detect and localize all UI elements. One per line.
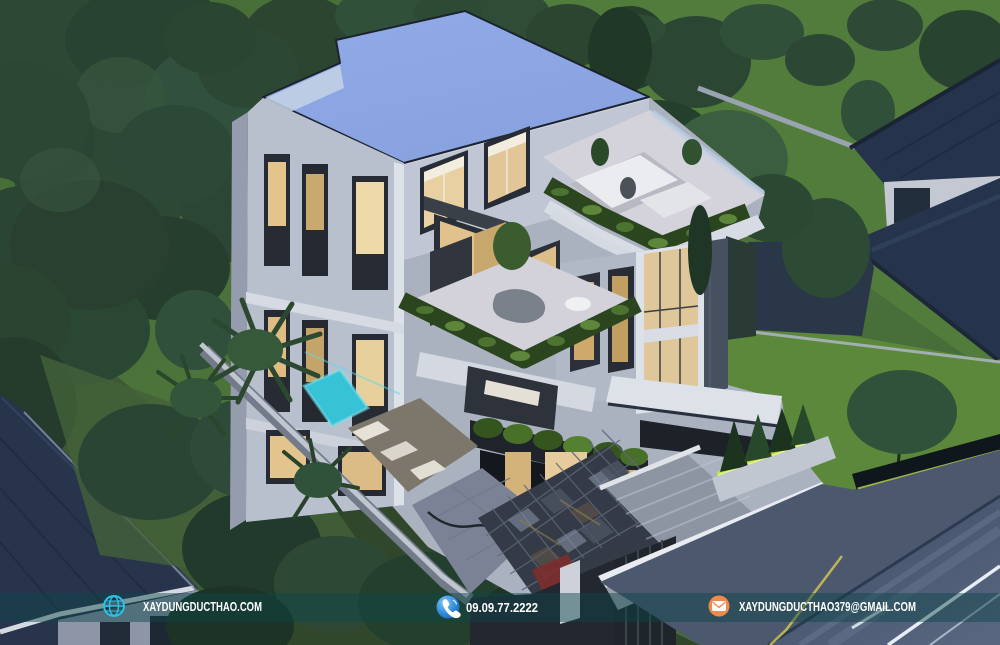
svg-text:XAYDUNGDUCTHAO379@GMAIL.COM: XAYDUNGDUCTHAO379@GMAIL.COM bbox=[739, 600, 916, 614]
svg-text:XAYDUNGDUCTHAO.COM: XAYDUNGDUCTHAO.COM bbox=[143, 600, 262, 614]
svg-text:09.09.77.2222: 09.09.77.2222 bbox=[466, 600, 538, 615]
